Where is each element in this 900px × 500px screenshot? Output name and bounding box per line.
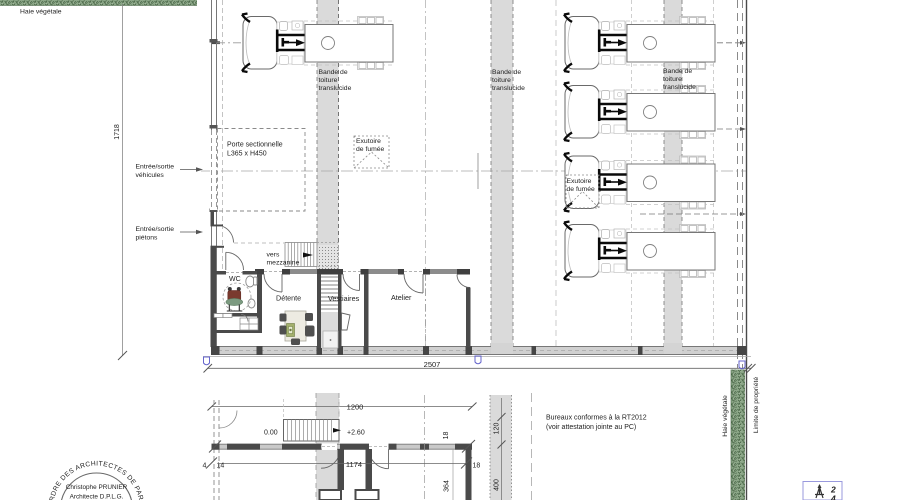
svg-text:L365 x H450: L365 x H450 xyxy=(227,151,267,158)
svg-text:+2.60: +2.60 xyxy=(347,430,365,437)
svg-text:Atelier: Atelier xyxy=(391,293,412,302)
svg-text:2507: 2507 xyxy=(424,360,441,369)
svg-text:de fumée: de fumée xyxy=(567,186,596,193)
svg-text:translucide: translucide xyxy=(663,84,696,91)
svg-text:Architecte D.P.L.G.: Architecte D.P.L.G. xyxy=(70,494,124,500)
svg-text:120: 120 xyxy=(494,423,501,435)
svg-text:Porte sectionnelle: Porte sectionnelle xyxy=(227,142,283,149)
svg-text:vers: vers xyxy=(267,252,280,259)
svg-text:toiture: toiture xyxy=(492,77,511,84)
svg-text:4: 4 xyxy=(830,494,836,500)
svg-text:véhicules: véhicules xyxy=(136,172,165,179)
svg-text:toiture: toiture xyxy=(319,77,338,84)
svg-text:18: 18 xyxy=(443,432,450,440)
svg-text:400: 400 xyxy=(494,479,501,491)
svg-text:1174: 1174 xyxy=(346,460,362,469)
svg-text:Détente: Détente xyxy=(276,294,301,303)
svg-text:Haie végétale: Haie végétale xyxy=(722,395,729,437)
svg-text:Entrée/sortie: Entrée/sortie xyxy=(136,226,175,233)
svg-text:Haie végétale: Haie végétale xyxy=(20,9,62,16)
svg-text:Bande de: Bande de xyxy=(492,69,521,76)
svg-text:translucide: translucide xyxy=(319,85,352,92)
svg-text:Vestiaires: Vestiaires xyxy=(328,294,360,303)
svg-text:piétons: piétons xyxy=(136,235,159,242)
svg-text:Bande de: Bande de xyxy=(663,68,692,75)
svg-text:Exutoire: Exutoire xyxy=(567,178,592,185)
svg-text:18: 18 xyxy=(473,463,481,470)
svg-text:Christophe PRUNIER: Christophe PRUNIER xyxy=(66,484,128,491)
svg-text:Bande de: Bande de xyxy=(319,69,348,76)
svg-text:mezzanine: mezzanine xyxy=(267,260,300,267)
svg-text:4: 4 xyxy=(203,463,207,470)
svg-text:1200: 1200 xyxy=(347,403,364,412)
svg-text:1718: 1718 xyxy=(114,124,121,140)
svg-text:14: 14 xyxy=(217,463,225,470)
svg-text:Limite de propriété: Limite de propriété xyxy=(753,377,760,434)
svg-text:(voir attestation jointe au PC: (voir attestation jointe au PC) xyxy=(546,424,636,431)
svg-text:toiture: toiture xyxy=(663,76,682,83)
svg-text:translucide: translucide xyxy=(492,85,525,92)
svg-text:de fumée: de fumée xyxy=(356,146,385,153)
svg-text:Bureaux conformes à la RT2012: Bureaux conformes à la RT2012 xyxy=(546,415,647,422)
svg-text:Entrée/sortie: Entrée/sortie xyxy=(136,164,175,171)
svg-text:WC: WC xyxy=(229,276,241,283)
svg-text:Exutoire: Exutoire xyxy=(356,138,381,145)
svg-text:364: 364 xyxy=(444,480,451,492)
svg-text:0.00: 0.00 xyxy=(264,430,278,437)
